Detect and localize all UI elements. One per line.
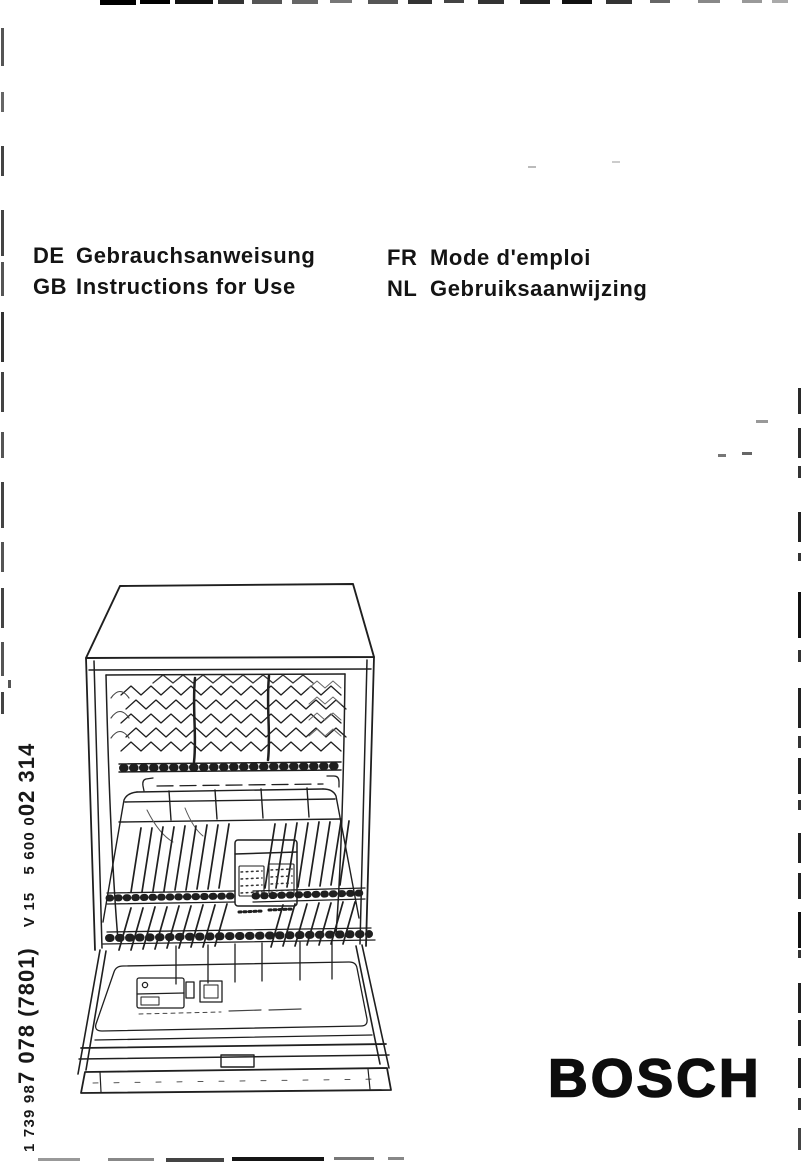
language-code: DE (33, 243, 76, 269)
scan-artifact-dash (798, 1128, 801, 1150)
scan-artifact-dash (1, 210, 4, 256)
scan-artifact-dash (798, 1098, 801, 1110)
scan-artifact-dash (1, 312, 4, 362)
scan-artifact-dash (100, 0, 136, 5)
scan-artifact-dash (742, 452, 752, 455)
scan-artifact-dash (798, 428, 801, 458)
scan-artifact-dash (140, 0, 170, 4)
dishwasher-illustration (73, 578, 403, 1128)
scan-artifact-dash (798, 873, 801, 899)
scan-artifact-dash (798, 650, 801, 662)
upper-basket (111, 675, 346, 772)
scan-artifact-dash (408, 0, 432, 4)
scan-artifact-dash (292, 0, 318, 4)
scan-artifact-dash (1, 372, 4, 412)
spine-part-number: 1 739 987 078 (7801)V 155 600 002 314 (14, 743, 40, 1152)
detergent-dispenser (137, 978, 301, 1014)
scan-artifact-dash (232, 1157, 324, 1161)
material-number-bold: 02 314 (14, 743, 39, 816)
scan-artifact-dash (698, 0, 720, 3)
scan-artifact-dash (798, 512, 801, 542)
scan-artifact-dash (798, 466, 801, 478)
scan-artifact-dash (444, 0, 464, 3)
scan-artifact-dash (1, 482, 4, 528)
scan-artifact-dash (742, 0, 762, 3)
scan-artifact-dash (478, 0, 504, 4)
scan-artifact-dash (1, 146, 4, 176)
scan-artifact-dash (252, 0, 282, 4)
scan-artifact-dash (1, 692, 4, 714)
scan-artifact-dash (798, 688, 801, 728)
part-number-prefix: 1 739 98 (21, 1084, 38, 1152)
version-code: V 15 (21, 892, 38, 928)
scan-artifact-dash (108, 1158, 154, 1161)
scan-artifact-dash (38, 1158, 80, 1161)
language-title: Mode d'emploi (430, 245, 591, 271)
open-door (78, 945, 389, 1074)
scan-artifact-dash (218, 0, 244, 4)
language-list-right: FR Mode d'emploi NL Gebruiksaanwijzing (387, 245, 647, 307)
language-row: GB Instructions for Use (33, 274, 315, 305)
scan-artifact-dash (8, 680, 11, 688)
language-row: NL Gebruiksaanwijzing (387, 276, 647, 307)
language-list-left: DE Gebrauchsanweisung GB Instructions fo… (33, 243, 315, 305)
scan-artifact-dash (718, 454, 726, 457)
scan-artifact-dash (798, 912, 801, 948)
language-code: GB (33, 274, 76, 300)
scan-artifact-dash (528, 166, 536, 168)
language-title: Instructions for Use (76, 274, 296, 300)
scan-artifact-dash (772, 0, 788, 3)
scan-artifact-dash (166, 1158, 224, 1162)
scan-artifact-dash (650, 0, 670, 3)
scan-artifact-dash (798, 983, 801, 1013)
scan-artifact-dash (1, 588, 4, 628)
scan-artifact-dash (756, 420, 768, 423)
language-row: DE Gebrauchsanweisung (33, 243, 315, 274)
scan-artifact-dash (606, 0, 632, 4)
scan-artifact-dash (612, 161, 620, 163)
scan-artifact-dash (798, 950, 801, 958)
language-title: Gebruiksaanwijzing (430, 276, 647, 302)
scan-artifact-dash (175, 0, 213, 4)
scan-artifact-dash (330, 0, 352, 3)
scan-artifact-dash (1, 262, 4, 296)
scan-artifact-dash (562, 0, 592, 4)
scan-artifact-dash (1, 642, 4, 676)
language-code: NL (387, 276, 430, 302)
language-code: FR (387, 245, 430, 271)
scan-artifact-dash (1, 542, 4, 572)
part-number-bold: 7 078 (7801) (14, 947, 39, 1084)
language-title: Gebrauchsanweisung (76, 243, 315, 269)
scan-artifact-dash (798, 833, 801, 863)
scan-artifact-dash (798, 1020, 801, 1046)
brand-logo: BOSCH (548, 1047, 762, 1109)
language-row: FR Mode d'emploi (387, 245, 647, 276)
scan-artifact-dash (798, 388, 801, 414)
scan-artifact-dash (798, 553, 801, 561)
scan-artifact-dash (334, 1157, 374, 1160)
scan-artifact-dash (388, 1157, 404, 1160)
scan-artifact-dash (1, 92, 4, 112)
material-number-prefix: 5 600 0 (21, 816, 38, 874)
scan-artifact-dash (798, 758, 801, 794)
scan-artifact-dash (798, 736, 801, 748)
scan-artifact-dash (520, 0, 550, 4)
scan-artifact-dash (368, 0, 398, 4)
scan-artifact-dash (1, 28, 4, 66)
base-plinth (81, 1068, 391, 1093)
scan-artifact-dash (1, 432, 4, 458)
scan-artifact-dash (798, 800, 801, 810)
scan-artifact-dash (798, 592, 801, 638)
manual-cover-page: DE Gebrauchsanweisung GB Instructions fo… (0, 0, 802, 1166)
scan-artifact-dash (798, 1058, 801, 1088)
